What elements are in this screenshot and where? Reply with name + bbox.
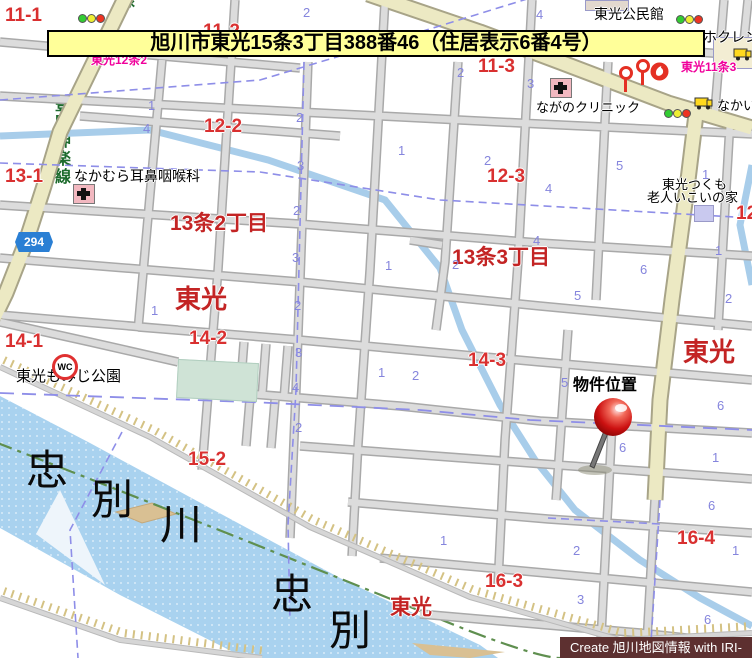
traffic-light-icon <box>664 109 691 127</box>
lollipop-sign-icon <box>618 66 632 92</box>
pin-head <box>594 398 632 436</box>
map-canvas[interactable]: 11-111-211-312-212-312-413-114-114-214-3… <box>0 0 752 658</box>
truck-icon <box>694 96 713 115</box>
park-area <box>176 359 259 402</box>
address-banner: 旭川市東光15条3丁目388番46（住居表示6番4号） <box>47 30 705 57</box>
fire-station-icon <box>650 62 669 86</box>
building-icon <box>585 0 629 11</box>
truck-icon <box>733 47 752 66</box>
wc-toilet-icon: WC <box>52 354 78 380</box>
hospital-icon <box>550 78 572 98</box>
lollipop-sign-icon <box>635 59 649 85</box>
map-vector-art <box>0 0 752 658</box>
pin-needle <box>590 431 608 468</box>
hospital-icon <box>73 184 95 204</box>
building-icon <box>694 205 714 222</box>
route-294-shield-icon: 294 <box>15 232 53 252</box>
map-credit: Create 旭川地図情報 with IRI-GO <box>560 637 752 658</box>
